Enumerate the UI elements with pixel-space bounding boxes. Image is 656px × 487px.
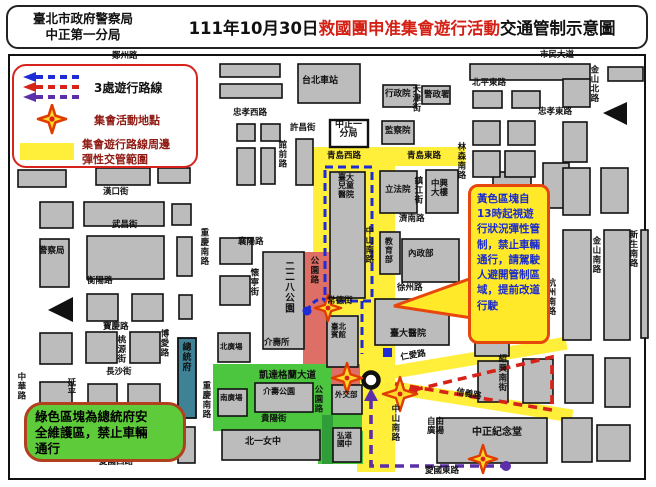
building-block	[132, 294, 163, 321]
street-label: 凱達格蘭大道	[259, 371, 316, 381]
street-label: 公園路	[309, 256, 318, 285]
place-label: 警察局	[39, 247, 65, 256]
street-label: 新生南路	[628, 230, 637, 268]
place-label: 台北車站	[302, 77, 338, 86]
street-label: 武昌街	[112, 221, 138, 230]
street-label: 市民大道	[540, 51, 574, 60]
building-block	[220, 64, 280, 77]
building-block	[87, 236, 164, 279]
street-label: 貴陽街	[261, 415, 287, 424]
purple-route-dot	[501, 461, 511, 471]
street-label: 北平東路	[472, 79, 506, 88]
building-block	[237, 124, 255, 141]
building-block	[261, 124, 280, 141]
building-block	[605, 358, 630, 407]
building-block	[473, 121, 500, 145]
traffic-control-map-page: 臺北市政府警察局 中正第一分局 111年10月30日救國團申准集會遊行活動交通管…	[0, 0, 656, 487]
legend-star-label: 集會活動地點	[94, 112, 160, 128]
building-block	[18, 170, 66, 187]
street-label: 忠孝東路	[538, 108, 572, 117]
street-label: 金山北路	[589, 65, 598, 103]
street-label: 衡陽路	[87, 277, 113, 286]
place-label: 臺北賓館	[331, 323, 346, 339]
building-block	[601, 168, 628, 213]
yellow-zone-callout: 黃色區塊自13時起視遊行狀況彈性管制，禁止車輛通行，請駕駛人避開管制區域，提前改…	[468, 184, 550, 344]
place-label: 二二八公園	[283, 261, 293, 314]
place-label: 立法院	[385, 186, 411, 195]
street-label: 博愛路	[159, 329, 168, 358]
street-label: 懷寧街	[249, 268, 258, 297]
legend-zone-line1: 集會遊行路線周邊	[82, 138, 170, 153]
street-label: 中山南路	[390, 404, 399, 442]
street-label: 鎮江街	[413, 176, 422, 205]
place-label: 中正紀念堂	[472, 428, 522, 439]
building-block	[505, 151, 535, 177]
building-block	[563, 168, 590, 215]
assembly-star-center	[345, 376, 350, 381]
building-block	[508, 121, 535, 145]
building-block	[172, 204, 191, 225]
building-block	[402, 239, 459, 282]
street-label: 寶慶路	[103, 323, 129, 332]
building-block	[512, 91, 540, 108]
triangle-symbol-west	[48, 297, 73, 322]
building-block	[563, 79, 590, 107]
place-label: 行政院	[385, 90, 411, 99]
street-label: 天津街	[411, 84, 420, 113]
assembly-star-icon	[20, 104, 82, 136]
building-block	[473, 91, 502, 108]
place-label: 臺大兒童醫院	[338, 174, 354, 199]
street-label: 延平	[66, 378, 75, 397]
green-zone-callout: 綠色區塊為總統府安 全維護區，禁止車輛 通行	[24, 402, 186, 462]
street-label: 中華路	[16, 372, 25, 401]
yellow-zone-swatch	[20, 143, 74, 160]
street-label: 青島東路	[407, 152, 441, 161]
street-label: 許昌街	[290, 124, 316, 133]
street-label: 鄭州路	[112, 52, 138, 61]
building-block	[608, 67, 643, 81]
street-label: 漢口街	[103, 188, 129, 197]
street-label: 中山南路	[364, 226, 373, 264]
place-label: 北一女中	[245, 438, 281, 447]
street-label: 忠孝西路	[233, 109, 267, 118]
street-label: 館前路	[277, 140, 286, 169]
street-label: 襄陽路	[238, 238, 264, 247]
street-label: 公園路	[313, 385, 322, 414]
blue-route-marker	[383, 348, 392, 357]
street-label: 林森南路	[456, 142, 465, 180]
blue-route-dot	[303, 307, 312, 316]
street-label: 重慶南路	[201, 381, 210, 419]
place-label: 總統府	[180, 342, 189, 372]
route-arrows-icon	[20, 70, 82, 104]
street-label: 濟南路	[399, 215, 425, 224]
place-label: 外交部	[335, 391, 358, 399]
building-block	[40, 202, 73, 228]
place-label: 警政署	[424, 91, 450, 100]
place-label: 介壽所	[264, 339, 290, 348]
building-block	[641, 230, 648, 338]
building-block	[565, 355, 593, 403]
triangle-symbol-northeast	[603, 102, 627, 125]
green-callout-line2: 全維護區，禁止車輛	[35, 425, 177, 441]
building-block	[220, 276, 250, 305]
legend-star-center	[49, 116, 54, 121]
street-label: 青島西路	[327, 152, 361, 161]
street-label: 長沙街	[106, 368, 132, 377]
green-zone-dark	[322, 415, 333, 464]
street-label: 徐州路	[397, 284, 423, 293]
building-block	[130, 332, 160, 363]
building-block	[40, 333, 72, 364]
building-block	[177, 237, 192, 276]
legend-routes-label: 3處遊行路線	[94, 79, 162, 96]
legend-route-arrowhead	[23, 72, 36, 82]
place-label: 臺大醫院	[390, 330, 426, 339]
place-label: 弘道國中	[337, 432, 352, 448]
place-label: 中正一分局	[335, 121, 362, 140]
green-callout-line1: 綠色區塊為總統府安	[35, 409, 177, 425]
building-block	[96, 168, 150, 185]
building-block	[604, 230, 630, 340]
green-callout-line3: 通行	[35, 441, 177, 457]
legend-route-arrowhead	[23, 92, 36, 102]
place-label: 北廣場	[220, 343, 243, 351]
place-label: 自由廣場	[427, 418, 444, 436]
building-block	[563, 230, 591, 340]
building-block	[86, 332, 117, 363]
building-block	[523, 359, 553, 403]
place-label: 南廣場	[220, 394, 243, 402]
assembly-star-center	[398, 392, 403, 397]
street-label: 常德街	[327, 297, 353, 306]
place-label: 教育部	[384, 237, 392, 264]
street-label: 愛國東路	[425, 467, 459, 476]
building-block	[563, 122, 587, 162]
assembly-star-center	[481, 457, 486, 462]
place-label: 監察院	[385, 127, 411, 136]
building-block	[220, 84, 282, 98]
building-block	[562, 418, 592, 462]
legend-route-arrowhead	[23, 82, 36, 92]
building-block	[261, 148, 275, 184]
legend: 3處遊行路線 集會活動地點 集會遊行路線周邊 彈性交管範圍	[12, 64, 198, 168]
legend-zone-line2: 彈性交管範圍	[82, 153, 170, 168]
assembly-star-center	[326, 306, 331, 311]
east-gate-roundabout	[364, 373, 379, 388]
street-label: 紹興南街	[497, 354, 506, 392]
place-label: 中興大樓	[431, 180, 448, 198]
building-block	[597, 425, 630, 461]
legend-zone-label: 集會遊行路線周邊 彈性交管範圍	[82, 138, 170, 168]
building-block	[179, 295, 192, 319]
building-block	[473, 151, 500, 177]
place-label: 介壽公園	[263, 388, 295, 396]
building-block	[158, 168, 190, 183]
building-block	[87, 294, 118, 321]
street-label: 桃源街	[116, 335, 125, 364]
street-label: 金山南路	[591, 236, 600, 274]
building-block	[296, 139, 313, 185]
place-label: 內政部	[408, 250, 434, 259]
building-block	[237, 148, 255, 185]
street-label: 重慶南路	[199, 228, 208, 266]
